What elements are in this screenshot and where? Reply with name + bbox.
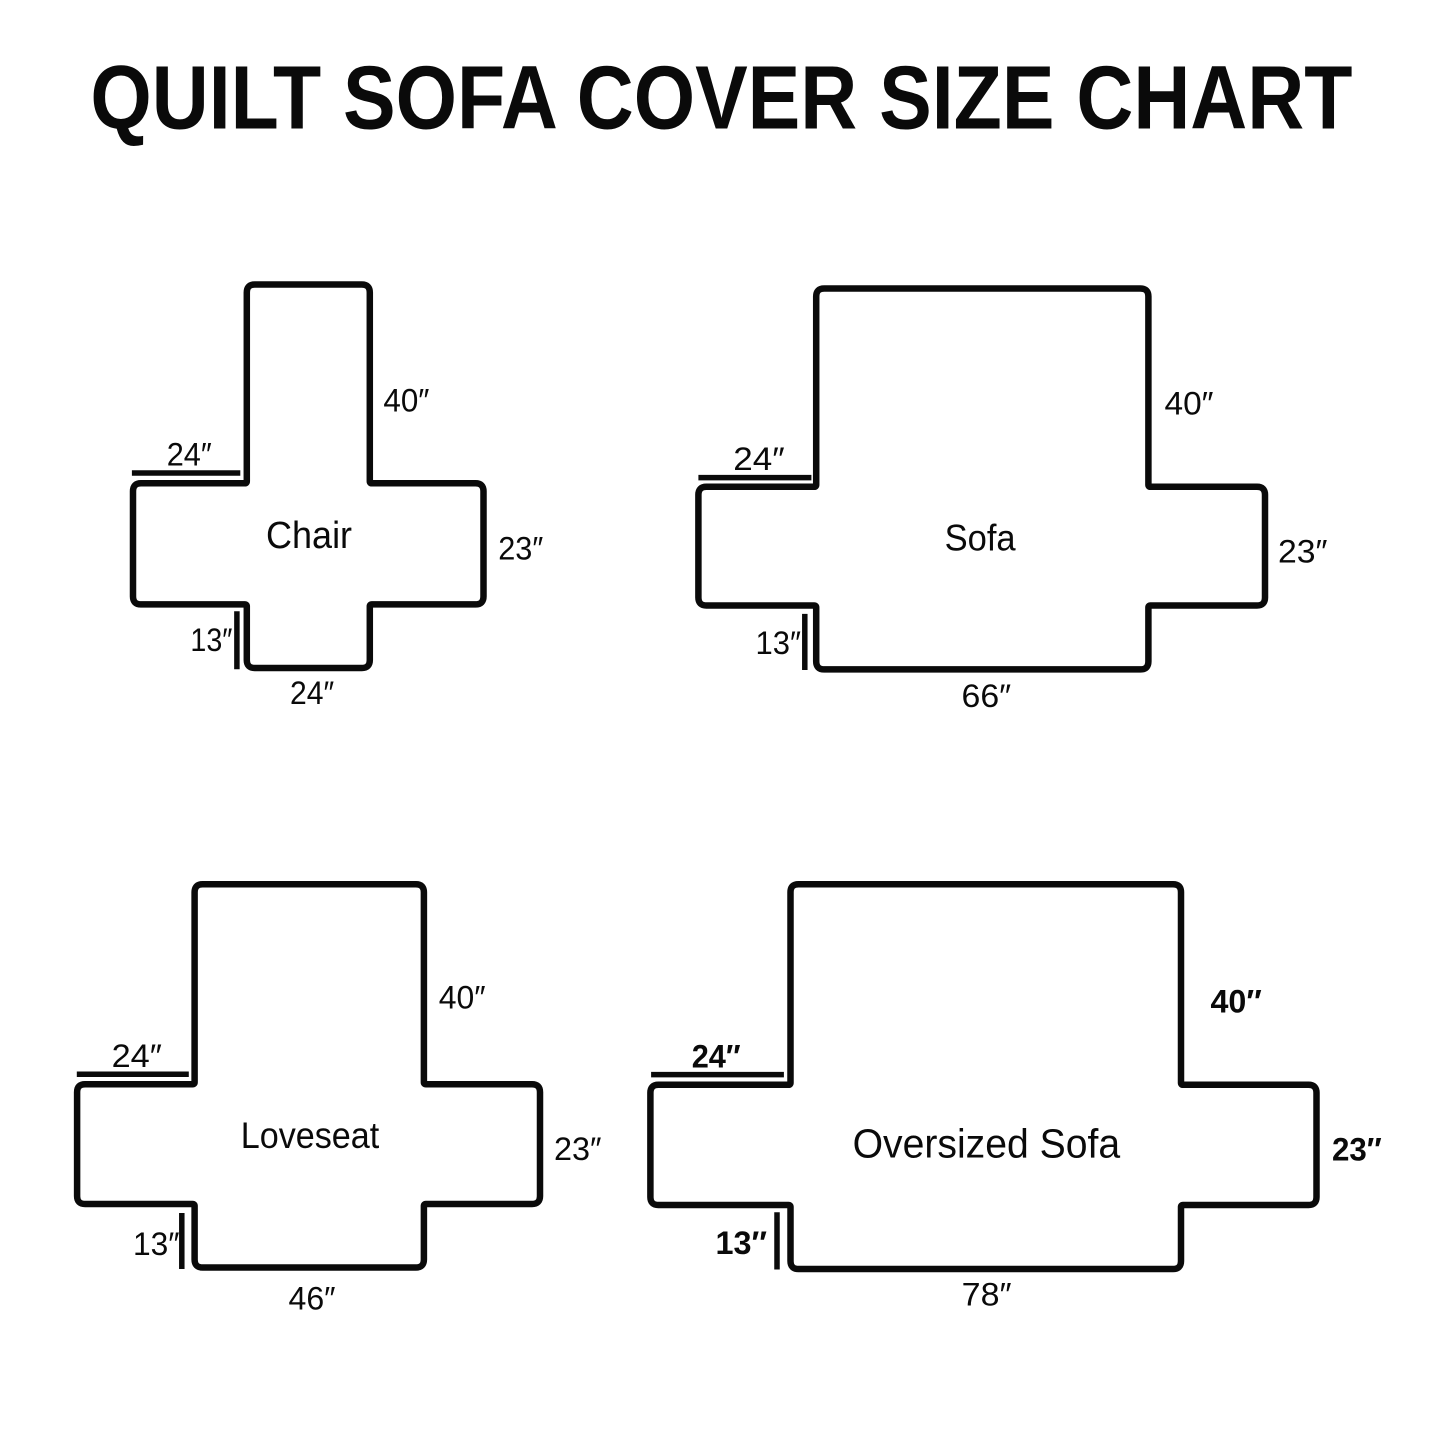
- svg-text:Sofa: Sofa: [945, 516, 1016, 558]
- svg-text:24″: 24″: [290, 675, 334, 711]
- svg-text:40″: 40″: [439, 980, 486, 1016]
- svg-text:Oversized Sofa: Oversized Sofa: [853, 1121, 1121, 1167]
- svg-text:24″: 24″: [112, 1038, 162, 1074]
- svg-text:13″: 13″: [756, 625, 801, 661]
- svg-text:23″: 23″: [554, 1131, 602, 1167]
- svg-text:23″: 23″: [1332, 1131, 1382, 1167]
- svg-text:40″: 40″: [1165, 385, 1214, 421]
- svg-text:66″: 66″: [962, 678, 1012, 714]
- svg-text:13″: 13″: [190, 622, 232, 658]
- svg-text:13″: 13″: [133, 1226, 180, 1262]
- svg-text:40″: 40″: [1211, 984, 1262, 1020]
- svg-text:Loveseat: Loveseat: [241, 1115, 380, 1156]
- svg-text:23″: 23″: [498, 530, 543, 566]
- svg-text:24″: 24″: [692, 1039, 741, 1075]
- svg-text:24″: 24″: [167, 437, 212, 473]
- svg-text:Chair: Chair: [266, 515, 352, 557]
- svg-text:QUILT SOFA COVER SIZE CHART: QUILT SOFA COVER SIZE CHART: [90, 48, 1352, 148]
- svg-text:23″: 23″: [1278, 534, 1328, 570]
- svg-text:40″: 40″: [383, 382, 429, 418]
- svg-text:24″: 24″: [733, 441, 784, 477]
- svg-text:78″: 78″: [962, 1277, 1012, 1313]
- svg-text:13″: 13″: [716, 1225, 768, 1261]
- svg-text:46″: 46″: [289, 1281, 336, 1317]
